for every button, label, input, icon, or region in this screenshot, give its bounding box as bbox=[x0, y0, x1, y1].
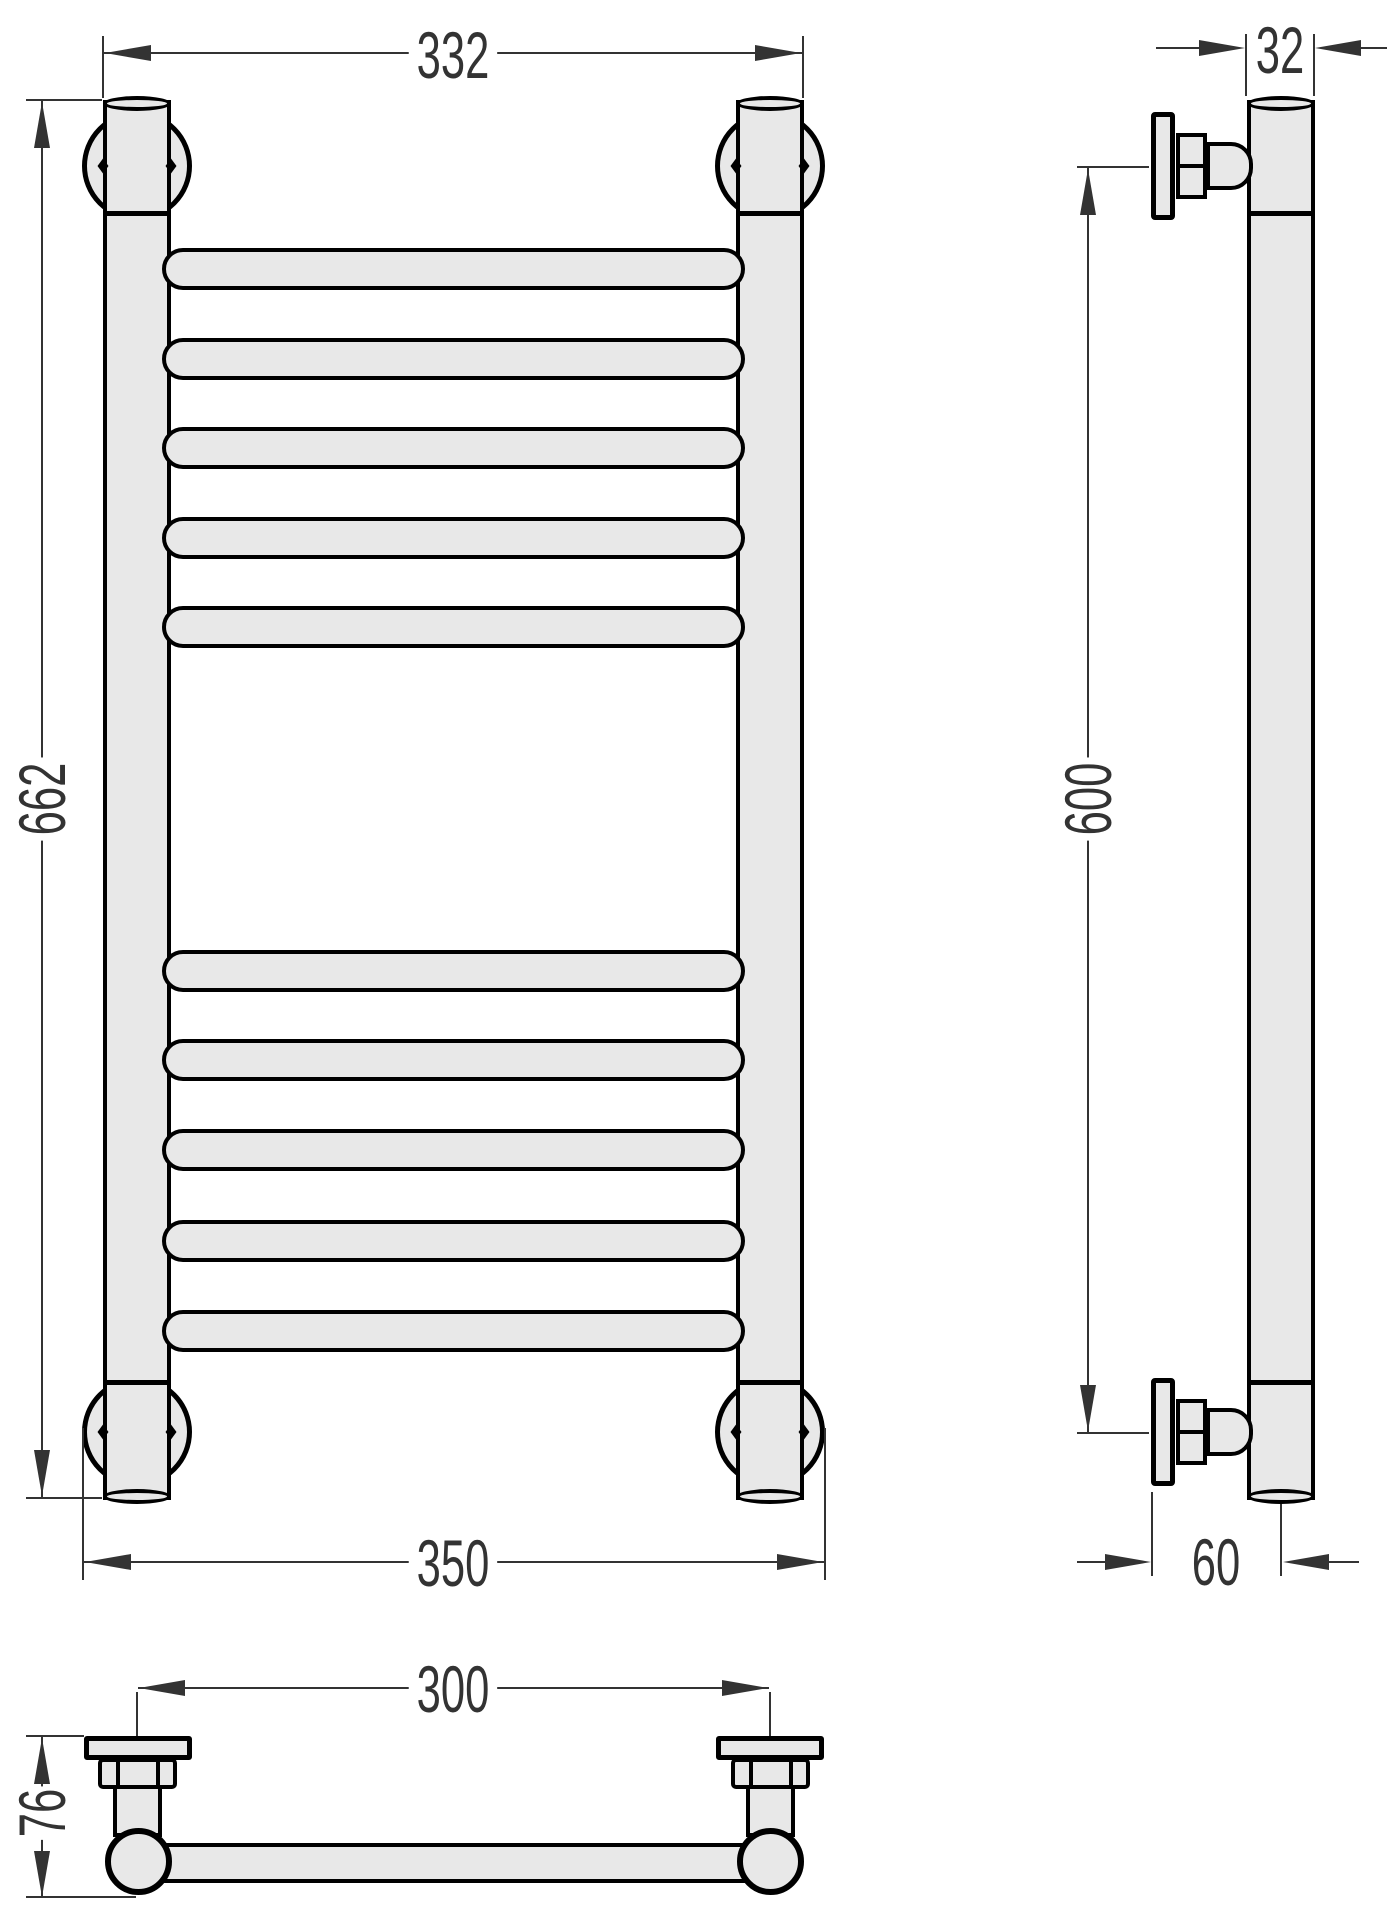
dim-extension-line bbox=[1077, 1432, 1149, 1434]
dim-arrow-left bbox=[1283, 1554, 1329, 1570]
dim-label-tube-diameter: 32 bbox=[1253, 17, 1307, 83]
technical-drawing-canvas: 332 662 350 32 600 60 300 76 bbox=[0, 0, 1390, 1920]
dim-arrow-right bbox=[1199, 40, 1245, 56]
dim-arrow-up bbox=[34, 102, 50, 148]
dim-extension-line bbox=[769, 1692, 771, 1736]
dim-arrow-down bbox=[34, 1851, 50, 1897]
plan-wall-plate-right bbox=[716, 1736, 824, 1760]
dim-extension-line bbox=[26, 1497, 102, 1499]
dim-arrow-up bbox=[34, 1738, 50, 1784]
plan-hex-nut-facet bbox=[749, 1758, 753, 1789]
dim-extension-line bbox=[1151, 1492, 1153, 1576]
dim-arrow-left bbox=[85, 1554, 131, 1570]
side-connector-pipe-bottom bbox=[1206, 1408, 1253, 1456]
front-left-tube-bottom-cap bbox=[103, 1489, 171, 1504]
dim-tail bbox=[1077, 1561, 1107, 1563]
front-right-tube-joint-top bbox=[736, 211, 804, 216]
dim-label-wall-offset: 60 bbox=[1189, 1529, 1243, 1595]
plan-hex-nut-right bbox=[731, 1758, 810, 1789]
side-tube bbox=[1247, 100, 1315, 1500]
towel-bar bbox=[162, 427, 745, 469]
plan-tube-section-right bbox=[737, 1828, 804, 1895]
front-right-tube bbox=[736, 100, 804, 1500]
side-hex-nut-facet bbox=[1176, 1430, 1207, 1434]
dim-arrow-left bbox=[139, 1680, 185, 1696]
side-connector-pipe-top bbox=[1206, 142, 1253, 190]
dim-tail bbox=[1361, 47, 1387, 49]
dim-extension-line bbox=[1245, 34, 1247, 96]
towel-bar bbox=[162, 517, 745, 559]
side-tube-joint-bottom bbox=[1247, 1380, 1315, 1385]
side-wall-plate-bottom bbox=[1151, 1378, 1175, 1486]
dim-extension-line bbox=[102, 36, 104, 98]
towel-bar bbox=[162, 950, 745, 992]
front-right-tube-joint-bottom bbox=[736, 1380, 804, 1385]
plan-towel-bar bbox=[140, 1843, 770, 1883]
dim-arrow-right bbox=[722, 1680, 768, 1696]
dim-arrow-down bbox=[1080, 1385, 1096, 1431]
dim-arrow-up bbox=[1080, 169, 1096, 215]
dim-label-front-width: 332 bbox=[409, 22, 498, 88]
dim-label-front-width-bottom: 350 bbox=[409, 1530, 498, 1596]
dim-arrow-left bbox=[105, 45, 151, 61]
front-right-tube-bottom-cap bbox=[736, 1489, 804, 1504]
plan-hex-nut-facet bbox=[116, 1758, 120, 1789]
plan-hex-nut-left bbox=[98, 1758, 177, 1789]
dim-arrow-down bbox=[34, 1450, 50, 1496]
plan-hex-nut-facet bbox=[789, 1758, 793, 1789]
dim-extension-line bbox=[824, 1428, 826, 1580]
towel-bar bbox=[162, 338, 745, 380]
front-left-tube-joint-top bbox=[103, 211, 171, 216]
side-hex-nut-facet bbox=[1176, 164, 1207, 168]
towel-bar bbox=[162, 1039, 745, 1081]
dim-label-depth: 76 bbox=[9, 1786, 75, 1840]
dim-label-mount-spacing: 600 bbox=[1055, 757, 1121, 840]
front-left-tube bbox=[103, 100, 171, 1500]
plan-wall-plate-left bbox=[84, 1736, 192, 1760]
dim-extension-line bbox=[26, 1735, 84, 1737]
dim-arrow-right bbox=[777, 1554, 823, 1570]
dim-extension-line bbox=[136, 1692, 138, 1736]
side-tube-bottom-cap bbox=[1247, 1489, 1315, 1504]
dim-extension-line bbox=[26, 99, 102, 101]
plan-tube-section-left bbox=[105, 1828, 172, 1895]
front-left-tube-joint-bottom bbox=[103, 1380, 171, 1385]
dim-tail bbox=[1329, 1561, 1359, 1563]
side-tube-joint-top bbox=[1247, 211, 1315, 216]
front-left-tube-top-cap bbox=[103, 96, 171, 111]
dim-arrow-left bbox=[1315, 40, 1361, 56]
towel-bar bbox=[162, 1129, 745, 1171]
dim-arrow-right bbox=[1105, 1554, 1151, 1570]
side-tube-top-cap bbox=[1247, 96, 1315, 111]
dim-extension-line bbox=[802, 36, 804, 98]
side-wall-plate-top bbox=[1151, 112, 1175, 220]
dim-extension-line bbox=[82, 1428, 84, 1580]
plan-hex-nut-facet bbox=[156, 1758, 160, 1789]
dim-label-mount-spacing-top: 300 bbox=[409, 1656, 498, 1722]
dim-arrow-right bbox=[755, 45, 801, 61]
towel-bar bbox=[162, 606, 745, 648]
front-right-tube-top-cap bbox=[736, 96, 804, 111]
dim-label-front-height: 662 bbox=[9, 757, 75, 840]
dim-tail bbox=[1156, 47, 1200, 49]
towel-bar bbox=[162, 248, 745, 290]
dim-extension-line bbox=[1280, 1504, 1282, 1576]
towel-bar bbox=[162, 1220, 745, 1262]
towel-bar bbox=[162, 1310, 745, 1352]
